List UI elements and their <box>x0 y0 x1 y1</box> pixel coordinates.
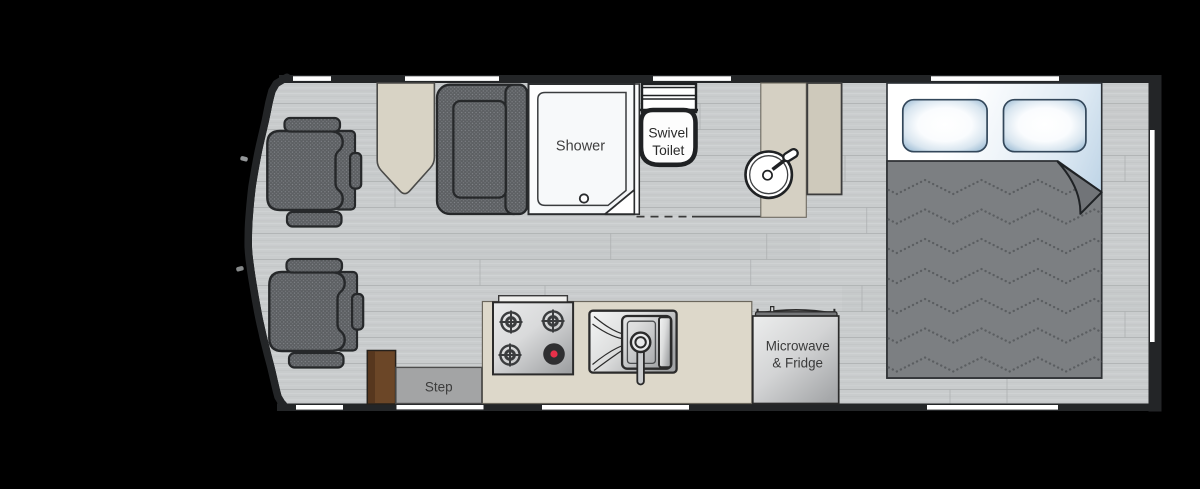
svg-text:Shower: Shower <box>556 139 605 155</box>
svg-text:Step: Step <box>425 380 453 395</box>
svg-text:& Fridge: & Fridge <box>772 356 823 371</box>
svg-text:Toilet: Toilet <box>652 143 684 158</box>
svg-text:Microwave: Microwave <box>766 339 830 354</box>
svg-text:Swivel: Swivel <box>648 126 688 141</box>
